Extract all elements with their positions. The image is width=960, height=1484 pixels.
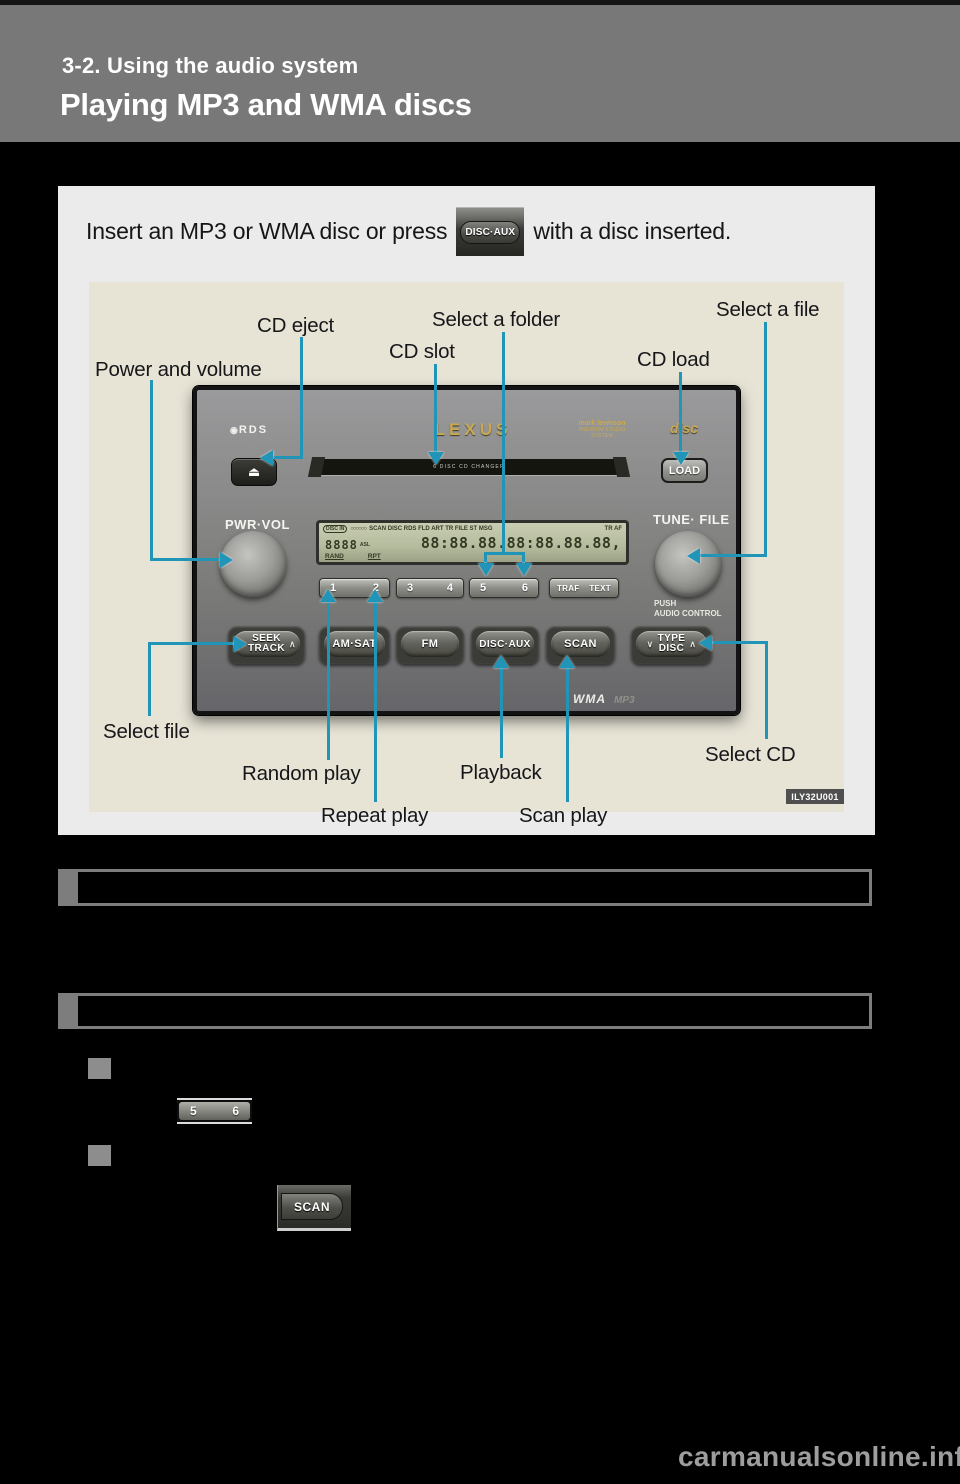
bullet-square-2 [88,1145,111,1166]
power-volume-line-v [150,380,153,560]
section-bar-2-tab [58,993,75,1029]
preset-5-6-button-image: 5 6 [177,1098,252,1124]
cd-slot: 6 DISC CD CHANGER [316,459,622,475]
premium-audio-logo: mark levinson PREMIUM STUDIO SYSTEM [571,420,633,440]
select-folder-bracket [484,552,525,555]
preset-5-6-pill: 5 6 [179,1102,250,1120]
premium-logo-line2: PREMIUM STUDIO SYSTEM [571,428,633,440]
scan-label: SCAN [564,638,597,650]
mp3-logo: MP3 [614,695,635,706]
content-box: Insert an MP3 or WMA disc or press DISC·… [58,186,875,835]
watermark: carmanualsonline.info [678,1441,960,1473]
callout-scan-play: Scan play [519,804,607,828]
select-folder-line-v [502,332,505,552]
text-label: TEXT [589,584,611,593]
cd-eject-line-h [273,456,303,459]
cd-eject-arrow-icon [260,450,273,466]
tune-file-knob [655,531,721,597]
digits-main: 88:88.88.88:88.88.88, [421,534,621,552]
pwr-vol-label: PWR·VOL [225,517,290,532]
select-file-top-arrow-icon [687,548,700,564]
cd-slot-line-v [434,364,437,452]
preset-3: 3 [407,582,413,594]
select-folder-arrow-2-icon [516,563,532,576]
power-volume-arrow-icon [220,552,233,568]
callout-cd-eject: CD eject [257,314,334,338]
cd-eject-line-v [300,337,303,459]
manual-page: 3-2. Using the audio system Playing MP3 … [0,0,960,1484]
preset-button-3-4: 3 4 [396,578,464,598]
display-mode-row: RAND RPT [325,553,381,560]
repeat-play-line-v [374,602,377,802]
select-file-top-line-v [764,322,767,556]
traf-text-button: TRAF TEXT [549,578,619,598]
bullet-square-1 [88,1058,111,1079]
eject-icon: ⏏ [248,464,260,480]
scan-radio-button: SCAN [546,626,615,664]
rds-icon: ◉ [230,425,239,435]
asl-indicator: ASL [360,542,370,548]
track-label: TRACK [248,644,285,655]
audio-control-label: AUDIO CONTROL [654,609,746,619]
scan-play-arrow-icon [559,655,575,668]
section-bar-2-box [75,993,872,1029]
disc-indicators: ○○○○○○ [350,526,366,532]
select-file-bottom-arrow-icon [234,636,247,652]
wma-logo: WMA [573,692,606,706]
playback-arrow-icon [493,655,509,668]
rds-logo: ◉RDS [230,424,268,436]
status-indicators: SCAN DISC RDS FLD ART TR FILE ST MSG [369,526,492,532]
select-file-bottom-line-v [148,642,151,716]
disc-label: DISC [659,644,685,655]
disc-in-indicator: DISC IN [323,525,347,533]
callout-select-file-top: Select a file [716,298,819,322]
random-play-line-v [327,602,330,760]
callout-power-volume: Power and volume [95,358,262,382]
disc-aux-button-label: DISC·AUX [460,221,520,244]
display-digits-row: 8888 ASL 88:88.88.88:88.88.88, [325,534,621,552]
select-cd-line-h [712,641,768,644]
page-header: 3-2. Using the audio system Playing MP3 … [0,5,960,142]
preset-6: 6 [522,582,528,594]
disc-aux-button-image: DISC·AUX [456,207,524,256]
repeat-play-arrow-icon [367,589,383,602]
fm-label: FM [422,638,439,650]
preset-5-image-label: 5 [190,1104,197,1118]
select-cd-line-v [765,643,768,739]
select-cd-arrow-icon [699,635,712,651]
cd-load-line-v [679,372,682,452]
disc-changer-logo: disc [666,420,702,436]
type-up-chevron: ∧ [689,639,696,650]
select-file-top-line-h [700,554,767,557]
section-heading: 3-2. Using the audio system [62,53,358,79]
instruction-text-after: with a disc inserted. [533,218,731,245]
rand-indicator: RAND [325,553,344,560]
radio-unit: ◉RDS ⏏ 6 DISC CD CHANGER LEXUS mark levi… [193,386,740,715]
playback-line-v [500,668,503,758]
disc-aux-label: DISC·AUX [479,639,531,650]
scan-image-label: SCAN [294,1200,330,1214]
status-right: TR AF [605,526,622,532]
instruction-line: Insert an MP3 or WMA disc or press DISC·… [86,202,731,260]
callout-select-folder: Select a folder [432,308,560,332]
fm-button: FM [396,626,464,664]
push-audio-control-label: PUSH AUDIO CONTROL [654,599,746,620]
power-volume-line-h [150,558,220,561]
section-bar-1-tab [58,869,75,906]
seek-up-chevron: ∧ [289,639,296,650]
type-down-chevron: ∨ [647,639,654,650]
am-sat-label: AM·SAT [332,638,376,650]
figure-panel: Power and volume CD eject Select a folde… [89,282,844,812]
callout-playback: Playback [460,761,542,785]
callout-cd-slot: CD slot [389,340,455,364]
radio-display: DISC IN ○○○○○○ SCAN DISC RDS FLD ART TR … [316,520,629,565]
cd-load-arrow-icon [673,452,689,465]
preset-button-5-6: 5 6 [469,578,539,598]
digits-small: 8888 [325,538,358,552]
push-label: PUSH [654,599,746,609]
scan-play-line-v [566,668,569,802]
callout-select-file-bottom: Select file [103,720,190,744]
callout-random-play: Random play [242,762,361,786]
figure-image-code: ILY32U001 [786,789,844,804]
instruction-text-before: Insert an MP3 or WMA disc or press [86,218,447,245]
scan-button-image: SCAN [277,1185,351,1231]
rpt-indicator: RPT [368,553,381,560]
callout-cd-load: CD load [637,348,710,372]
callout-select-cd: Select CD [705,743,795,767]
preset-6-image-label: 6 [232,1104,239,1118]
page-title: Playing MP3 and WMA discs [60,87,472,123]
random-play-arrow-icon [320,589,336,602]
section-bar-1-box [75,869,872,906]
preset-5: 5 [480,582,486,594]
display-status-row: DISC IN ○○○○○○ SCAN DISC RDS FLD ART TR … [323,525,622,533]
rds-text: RDS [239,424,268,436]
tune-file-label: TUNE· FILE [653,512,730,527]
select-file-bottom-line-h [148,642,234,645]
traf-label: TRAF [557,584,580,593]
cd-slot-arrow-icon [428,452,444,465]
callout-repeat-play: Repeat play [321,804,428,828]
scan-image-pill: SCAN [281,1193,343,1220]
select-folder-arrow-1-icon [478,563,494,576]
preset-4: 4 [447,582,453,594]
format-logos: WMA MP3 [573,692,635,706]
